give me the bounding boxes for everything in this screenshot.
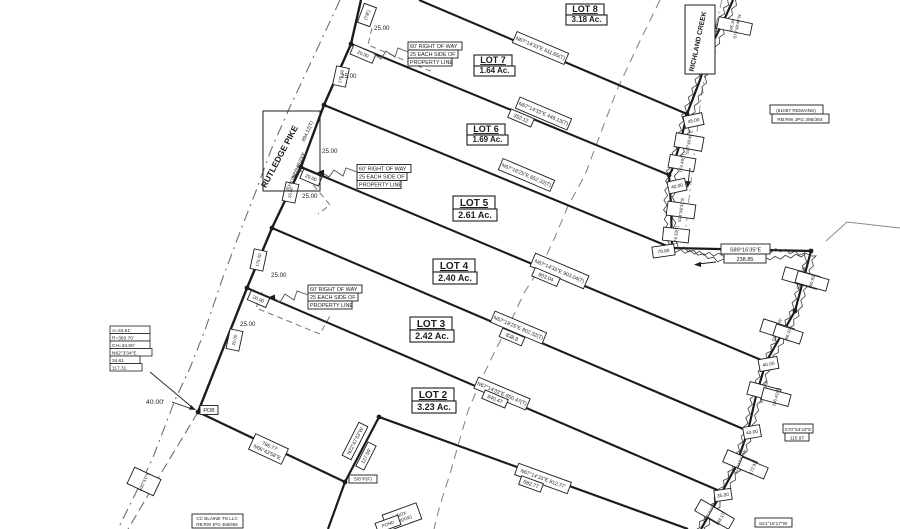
svg-text:25.00: 25.00 — [302, 193, 318, 200]
svg-text:PROPERTY LINE: PROPERTY LINE — [410, 60, 453, 66]
svg-text:POB: POB — [203, 408, 215, 414]
svg-text:S21°16'17"W: S21°16'17"W — [759, 521, 788, 527]
svg-text:60' RIGHT OF WAY: 60' RIGHT OF WAY — [410, 44, 458, 50]
svg-text:LOT 5: LOT 5 — [460, 198, 489, 209]
svg-text:S89°16'35"E: S89°16'35"E — [730, 248, 762, 254]
svg-text:PROPERTY LINE: PROPERTY LINE — [310, 303, 353, 309]
svg-text:115.97: 115.97 — [790, 436, 805, 442]
svg-text:LOT 3: LOT 3 — [417, 319, 446, 330]
svg-text:25 EACH SIDE OF: 25 EACH SIDE OF — [310, 295, 356, 301]
svg-text:2.40 Ac.: 2.40 Ac. — [438, 273, 472, 283]
svg-text:25.00: 25.00 — [271, 272, 287, 279]
svg-text:1.64 Ac.: 1.64 Ac. — [480, 66, 510, 75]
svg-text:R=360.70': R=360.70' — [112, 335, 134, 341]
svg-text:2.61 Ac.: 2.61 Ac. — [458, 210, 492, 220]
svg-text:1.69 Ac.: 1.69 Ac. — [473, 135, 503, 144]
svg-text:60' RIGHT OF WAY: 60' RIGHT OF WAY — [310, 287, 358, 293]
svg-text:CC BLAINE TN LLC: CC BLAINE TN LLC — [196, 516, 238, 521]
svg-text:S70°53'43"E: S70°53'43"E — [785, 427, 812, 433]
svg-text:25 EACH SIDE OF: 25 EACH SIDE OF — [410, 52, 456, 58]
svg-text:25.00: 25.00 — [240, 321, 256, 328]
svg-text:60' RIGHT OF WAY: 60' RIGHT OF WAY — [359, 167, 407, 173]
svg-text:5/8"P(F): 5/8"P(F) — [354, 477, 372, 483]
svg-text:25.00: 25.00 — [322, 148, 338, 155]
svg-text:LOT 8: LOT 8 — [572, 4, 598, 14]
svg-text:(51087 REMAINS): (51087 REMAINS) — [776, 108, 816, 114]
svg-text:117.31: 117.31 — [112, 365, 127, 371]
svg-text:LOT 6: LOT 6 — [473, 124, 499, 134]
svg-text:34.61: 34.61 — [112, 358, 124, 364]
svg-text:RB:RW JPG 395/364: RB:RW JPG 395/364 — [777, 117, 823, 123]
svg-text:25.00: 25.00 — [374, 25, 390, 32]
svg-text:2.42 Ac.: 2.42 Ac. — [415, 331, 449, 341]
svg-text:LOT 2: LOT 2 — [419, 390, 448, 401]
svg-text:LOT 7: LOT 7 — [480, 55, 506, 65]
svg-text:3.18 Ac.: 3.18 Ac. — [572, 15, 602, 24]
svg-text:LOT 4: LOT 4 — [440, 261, 469, 272]
svg-text:A=34.61': A=34.61' — [112, 328, 131, 334]
svg-text:25 EACH SIDE OF: 25 EACH SIDE OF — [359, 175, 405, 181]
svg-text:PROPERTY LINE: PROPERTY LINE — [359, 183, 402, 189]
svg-text:3.23 Ac.: 3.23 Ac. — [417, 402, 451, 412]
svg-text:CH=34.60': CH=34.60' — [112, 343, 135, 349]
svg-text:RB:RW JPG 465/658: RB:RW JPG 465/658 — [196, 522, 238, 527]
svg-text:25.00: 25.00 — [341, 73, 357, 80]
svg-text:N62°3'34"E: N62°3'34"E — [112, 350, 137, 356]
svg-text:40.00': 40.00' — [146, 399, 164, 406]
svg-text:238.85: 238.85 — [736, 257, 753, 263]
